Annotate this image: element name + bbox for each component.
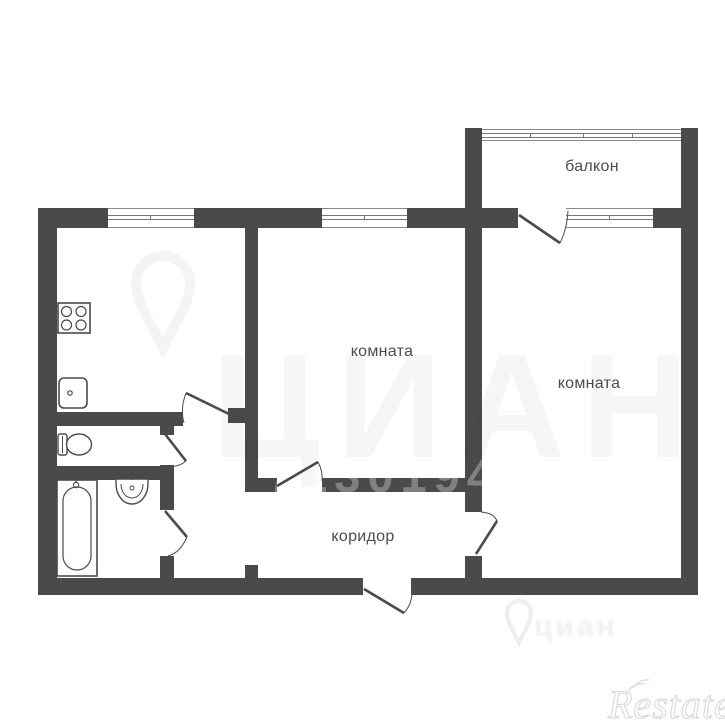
restate-logo-text: Restate <box>607 682 725 725</box>
room2-label: комната <box>529 375 649 393</box>
bathroom-door <box>165 511 187 556</box>
kitchen-sink-icon <box>59 378 87 408</box>
floor-plan: ЦИАН 7130194 циан <box>0 0 725 725</box>
cian-pin-watermark-icon <box>136 256 190 348</box>
washbasin-icon <box>116 471 148 504</box>
restate-logo: Restate <box>607 680 725 725</box>
balcony-label: балкон <box>532 158 652 176</box>
kitchen-door <box>182 393 229 423</box>
room2-door <box>476 512 497 554</box>
cian-pin-watermark-small-icon <box>507 601 531 643</box>
plan-linework: Restate <box>0 0 725 725</box>
corridor-label: коридор <box>303 528 423 546</box>
stove-icon <box>58 303 90 333</box>
balcony-door <box>519 211 568 243</box>
toilet-icon <box>58 434 92 455</box>
toilet-door <box>165 434 186 466</box>
bathtub-icon <box>57 476 97 576</box>
room1-door <box>277 462 322 486</box>
room1-label: комната <box>322 343 442 361</box>
entrance-door <box>364 589 412 613</box>
